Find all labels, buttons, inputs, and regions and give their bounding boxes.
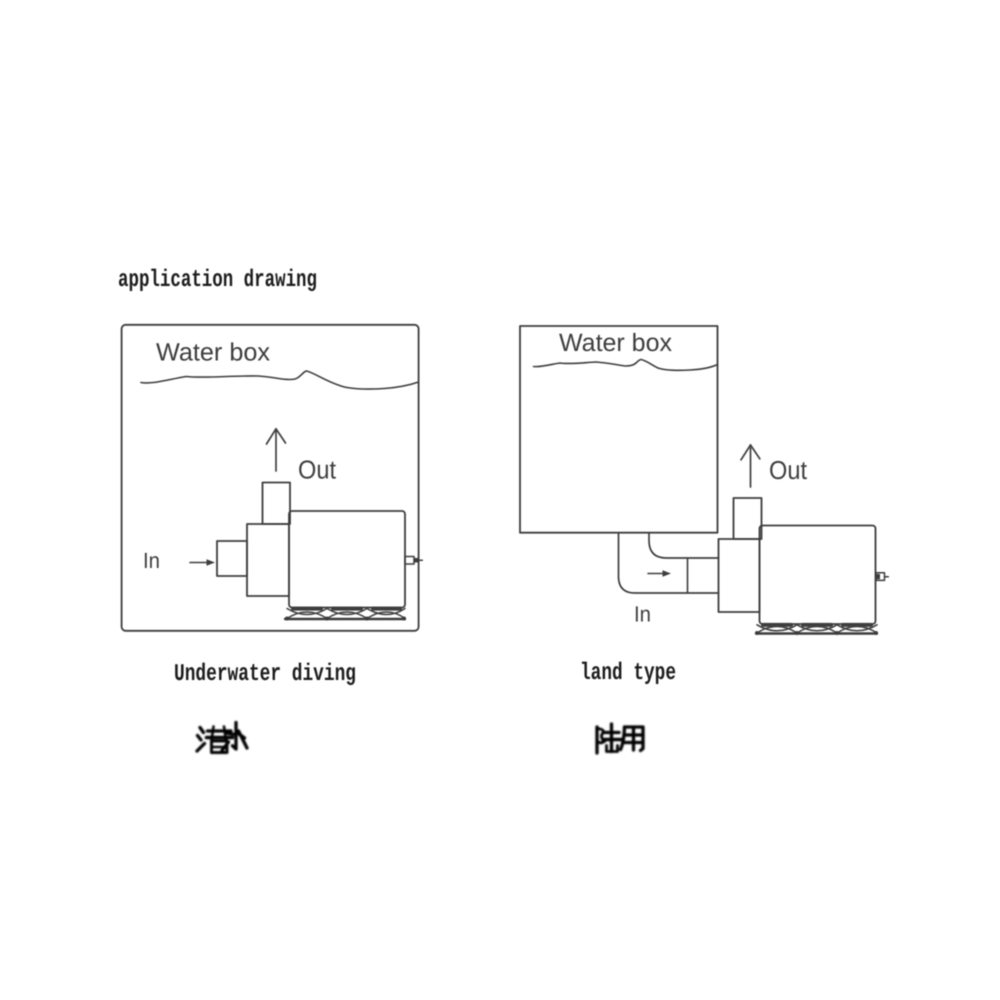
svg-text:application drawing: application drawing [118,267,317,294]
svg-text:Underwater diving: Underwater diving [174,661,356,688]
svg-text:land type: land type [580,660,676,687]
svg-text:Water box: Water box [559,329,672,357]
svg-text:Out: Out [298,455,337,485]
svg-text:In: In [634,602,651,627]
svg-text:Water box: Water box [156,339,270,367]
svg-text:In: In [143,548,160,573]
svg-text:Out: Out [769,455,808,485]
